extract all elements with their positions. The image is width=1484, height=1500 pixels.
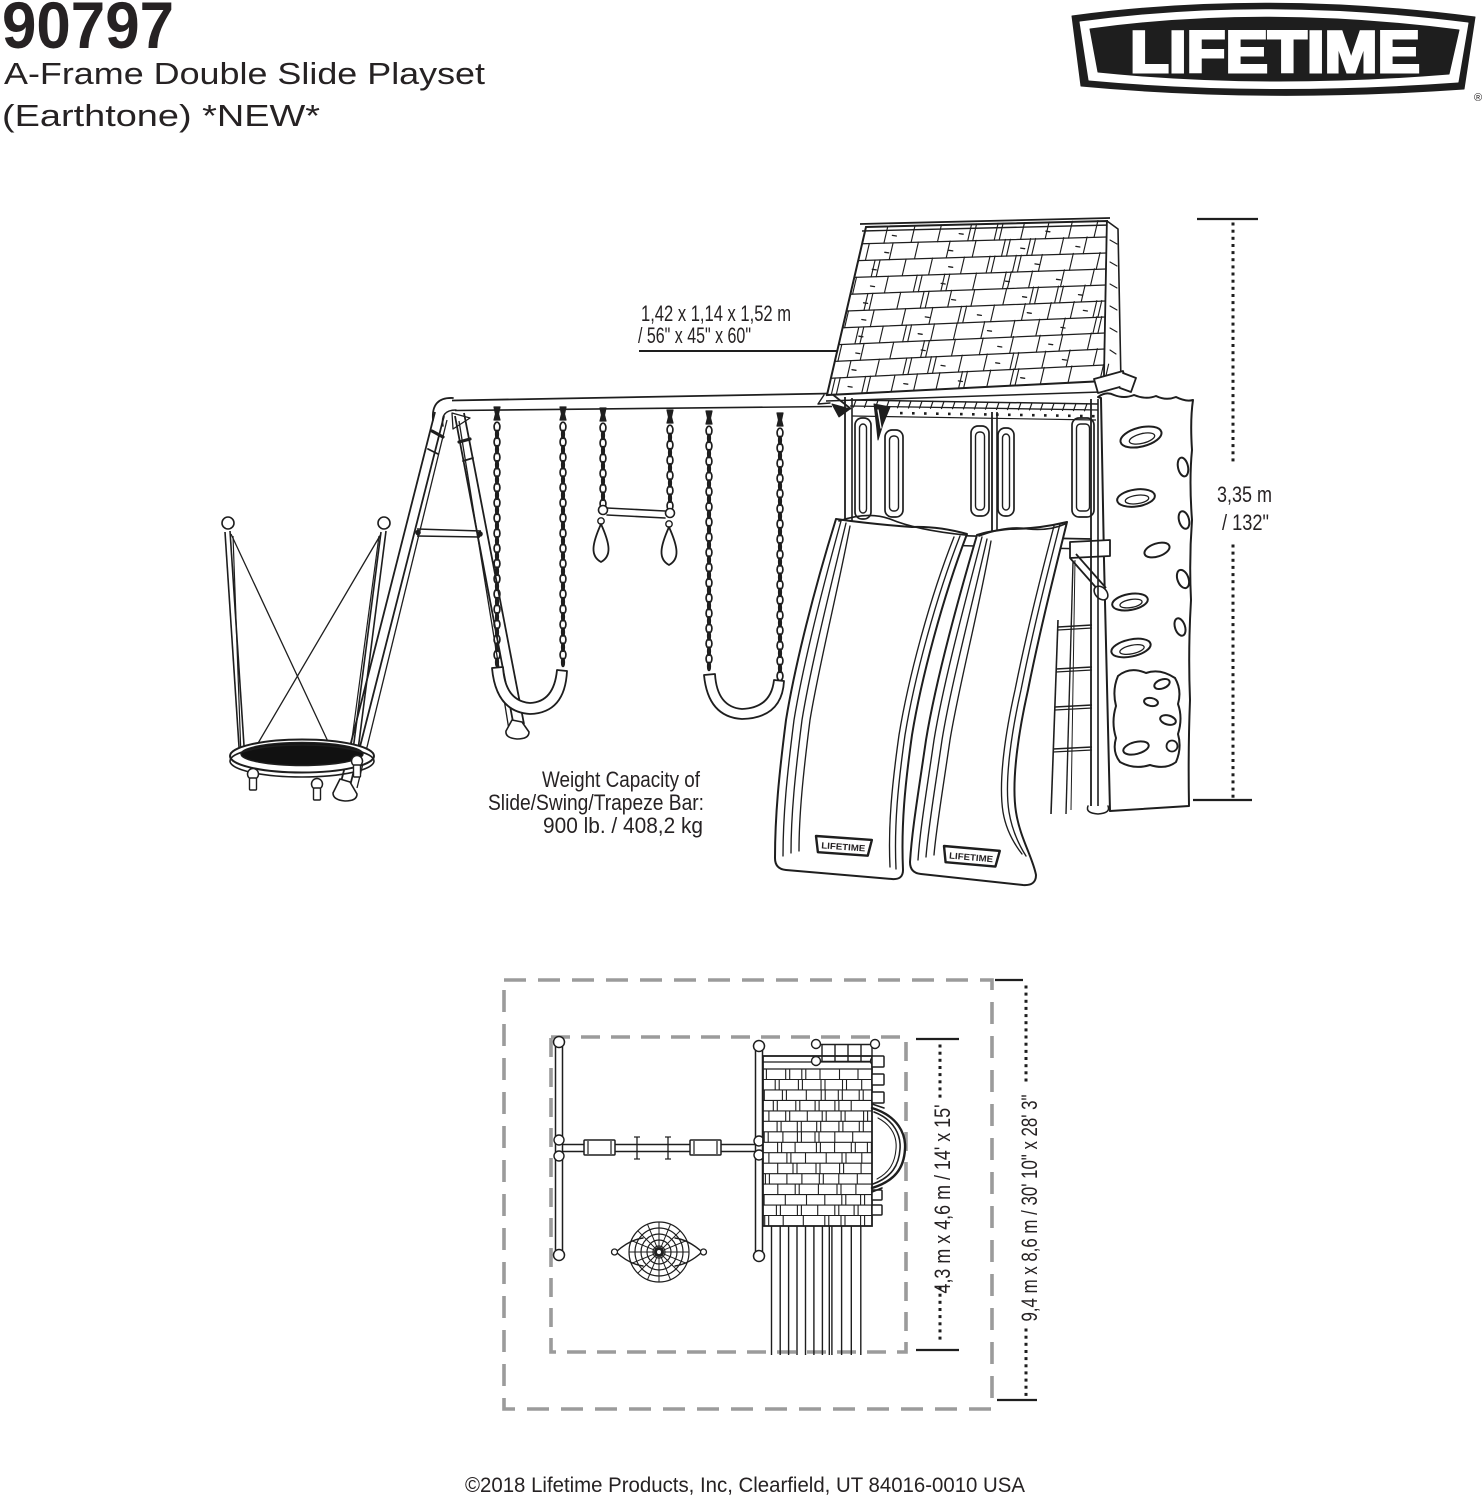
svg-text:©2018 Lifetime Products, Inc,: ©2018 Lifetime Products, Inc, Clearfield… bbox=[465, 1474, 1025, 1497]
svg-text:®: ® bbox=[1474, 92, 1482, 104]
svg-text:(Earthtone) *NEW*: (Earthtone) *NEW* bbox=[2, 98, 320, 133]
svg-text:90797: 90797 bbox=[2, 0, 174, 62]
svg-text:Weight Capacity of: Weight Capacity of bbox=[542, 767, 701, 792]
svg-text:/ 132": / 132" bbox=[1222, 510, 1269, 535]
svg-text:Slide/Swing/Trapeze Bar:: Slide/Swing/Trapeze Bar: bbox=[488, 790, 704, 815]
svg-text:900 lb. / 408,2 kg: 900 lb. / 408,2 kg bbox=[543, 813, 703, 838]
svg-text:A-Frame Double Slide Playset: A-Frame Double Slide Playset bbox=[4, 56, 485, 91]
svg-text:4,3 m x 4,6 m / 14' x 15': 4,3 m x 4,6 m / 14' x 15' bbox=[930, 1105, 955, 1294]
svg-text:9,4 m x 8,6 m / 30' 10" x 28': 9,4 m x 8,6 m / 30' 10" x 28' 3" bbox=[1017, 1095, 1042, 1322]
svg-text:/ 56" x 45" x 60": / 56" x 45" x 60" bbox=[638, 323, 751, 348]
svg-text:3,35 m: 3,35 m bbox=[1217, 482, 1272, 507]
svg-text:LIFETIME: LIFETIME bbox=[1130, 20, 1420, 85]
